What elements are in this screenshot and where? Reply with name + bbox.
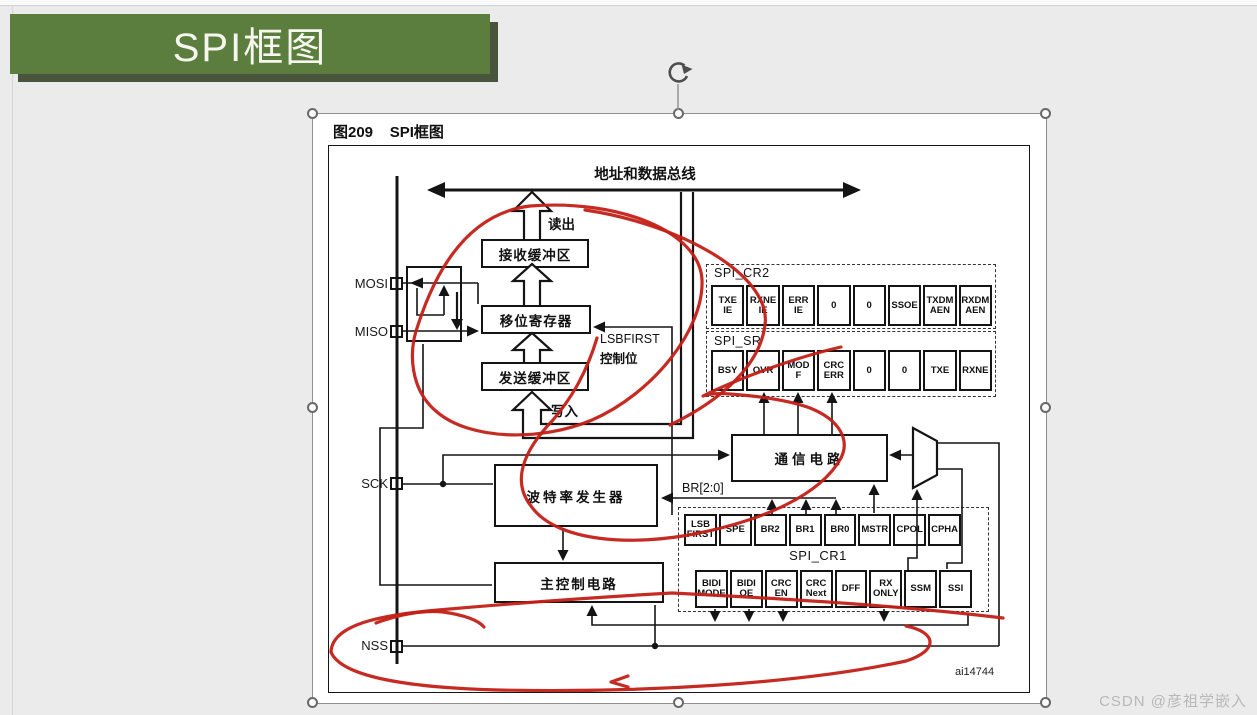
selection-rectangle <box>312 113 1047 704</box>
rotate-handle-icon[interactable] <box>670 63 693 81</box>
app-canvas: SPI框图 图209 SPI框图 地址和数据总线 读出 写入 MOSI MISO… <box>0 0 1257 715</box>
slide-title-banner: SPI框图 <box>10 14 490 74</box>
selection-handle[interactable] <box>307 697 318 708</box>
selection-handle[interactable] <box>307 402 318 413</box>
selection-handle[interactable] <box>1040 697 1051 708</box>
selection-handle[interactable] <box>1040 108 1051 119</box>
top-strip <box>0 0 1257 6</box>
csdn-watermark: CSDN @彦祖学嵌入 <box>1099 690 1247 711</box>
selection-handle[interactable] <box>1040 402 1051 413</box>
slide-title: SPI框图 <box>173 15 327 73</box>
selection-handle[interactable] <box>673 108 684 119</box>
selection-handle[interactable] <box>673 697 684 708</box>
left-edge-line <box>12 5 13 715</box>
selection-handle[interactable] <box>307 108 318 119</box>
